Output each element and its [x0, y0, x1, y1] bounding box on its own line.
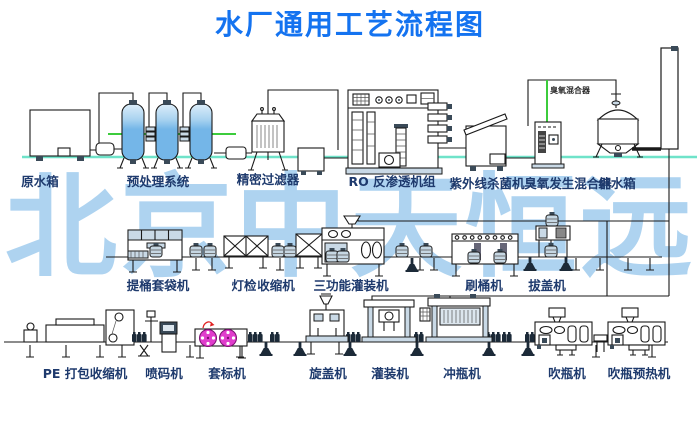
pure-water-tank — [593, 90, 661, 157]
diagram-canvas: 北京中天恒远 水厂通用工艺流程图 — [0, 0, 700, 438]
filling-machine — [362, 300, 416, 342]
bottle-rinsing-machine — [420, 294, 492, 342]
label-precision-filter: 精密过滤器 — [237, 172, 300, 187]
label-bottle-preheater: 吹瓶预热机 — [608, 366, 671, 381]
label-cap-puller: 拔盖机 — [528, 278, 566, 293]
label-pretreatment: 预处理系统 — [127, 174, 190, 189]
label-bottle-rinser: 冲瓶机 — [443, 366, 481, 381]
label-lamp-inspection: 灯检 — [231, 278, 257, 293]
label-filler: 灌装机 — [370, 366, 409, 381]
capping-machine — [306, 294, 348, 354]
ozone-pipe-note: 臭氧混合器 — [550, 85, 591, 95]
label-pure-water-tank: 纯水箱 — [598, 176, 636, 191]
valve-flange — [146, 127, 155, 141]
bottle-preheating-machine — [608, 308, 665, 355]
label-inkjet-coder: 喷码机 — [145, 366, 183, 381]
page-title: 水厂通用工艺流程图 — [215, 8, 485, 41]
label-shrink-machine: 收缩机 — [257, 278, 295, 293]
label-capper: 旋盖机 — [308, 366, 347, 381]
label-roll — [200, 330, 217, 347]
label-raw-water-tank: 原水箱 — [21, 174, 59, 189]
label-barrel-brusher: 刷桶机 — [465, 278, 503, 293]
ro-unit — [346, 90, 466, 174]
label-bucket-bagging: 提桶套袋机 — [127, 278, 190, 293]
film-feed-arrow — [203, 322, 215, 328]
bottle-blowing-machine — [535, 308, 592, 355]
label-pe-pack-shrink: PE 打包收缩机 — [43, 366, 128, 381]
label-three-function-filler: 三功能灌装机 — [313, 278, 389, 293]
process-flow-diagram: 北京中天恒远 水厂通用工艺流程图 — [0, 0, 700, 438]
label-uv-sterilizer: 紫外线杀菌机 — [449, 176, 525, 191]
label-ro-unit: RO 反渗透机组 — [348, 174, 436, 189]
sleeve-labeling-machine — [195, 322, 247, 358]
label-roll — [220, 330, 237, 347]
label-bottle-blower: 吹瓶机 — [548, 366, 586, 381]
label-sleeve-labeler: 套标机 — [207, 366, 246, 381]
inkjet-coding-machine — [145, 311, 177, 352]
valve-flange — [180, 127, 189, 141]
raw-water-tank — [30, 110, 122, 161]
pe-pack-shrink-machine — [24, 310, 150, 356]
